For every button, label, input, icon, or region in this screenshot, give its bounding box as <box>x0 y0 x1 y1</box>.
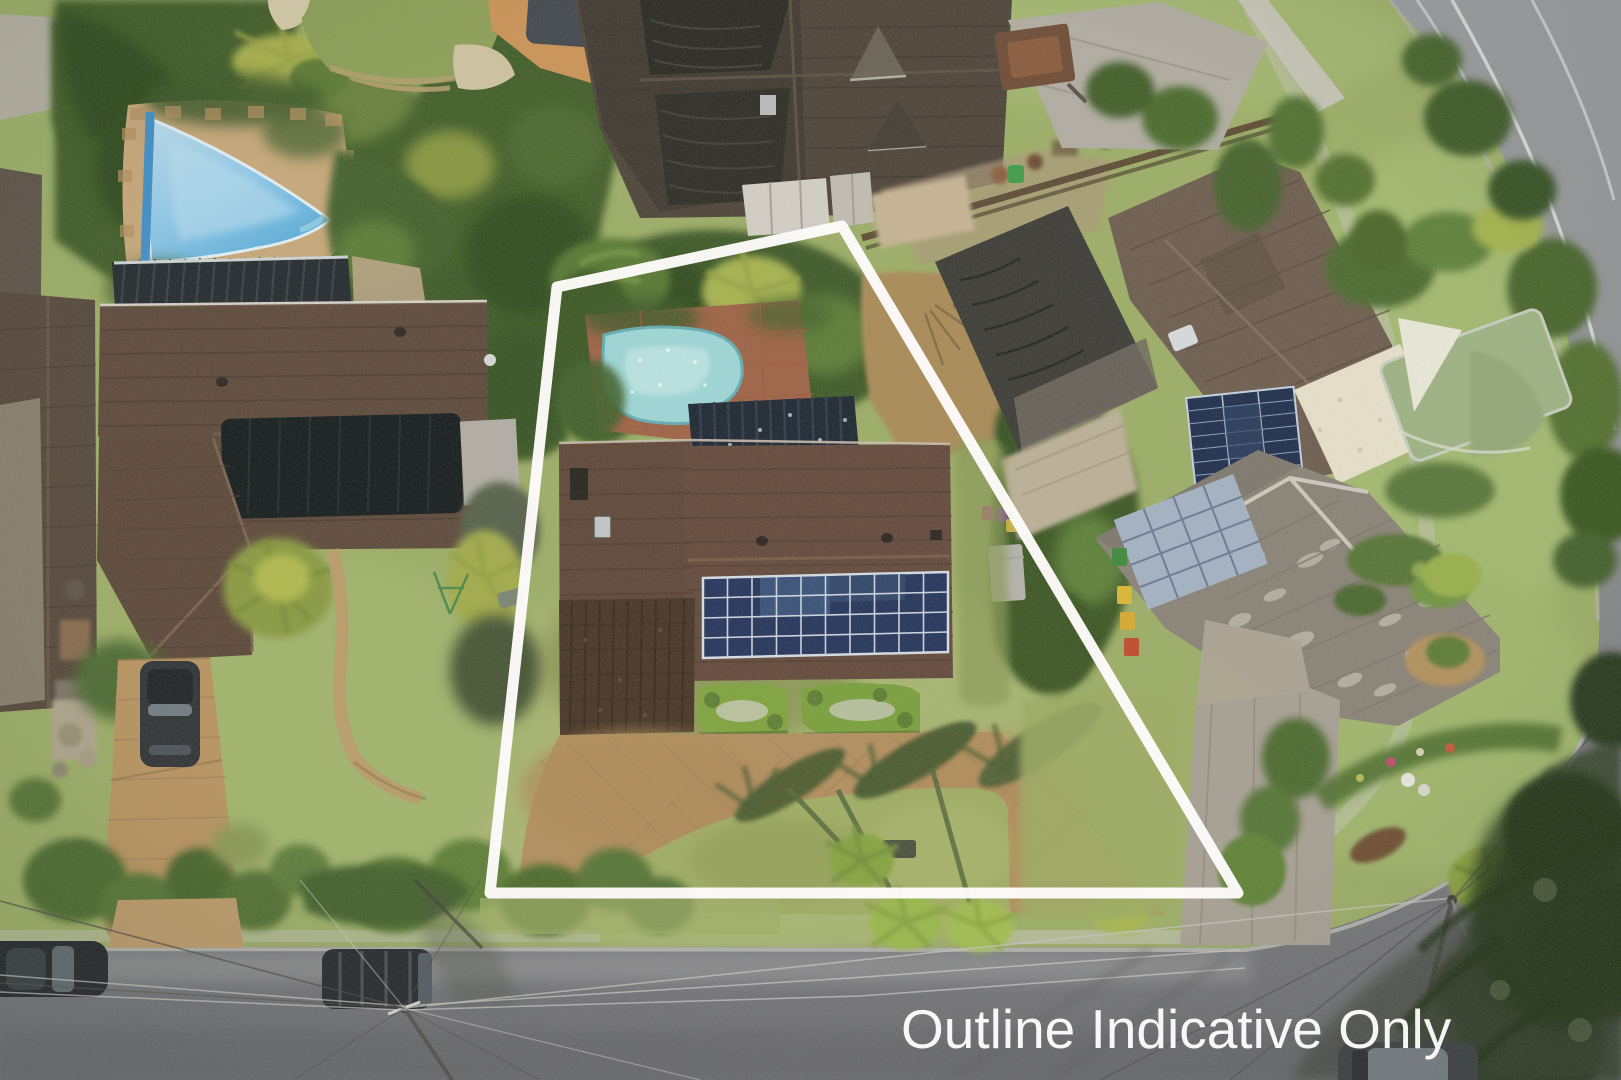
svg-text:Outline Indicative Only: Outline Indicative Only <box>901 998 1452 1060</box>
